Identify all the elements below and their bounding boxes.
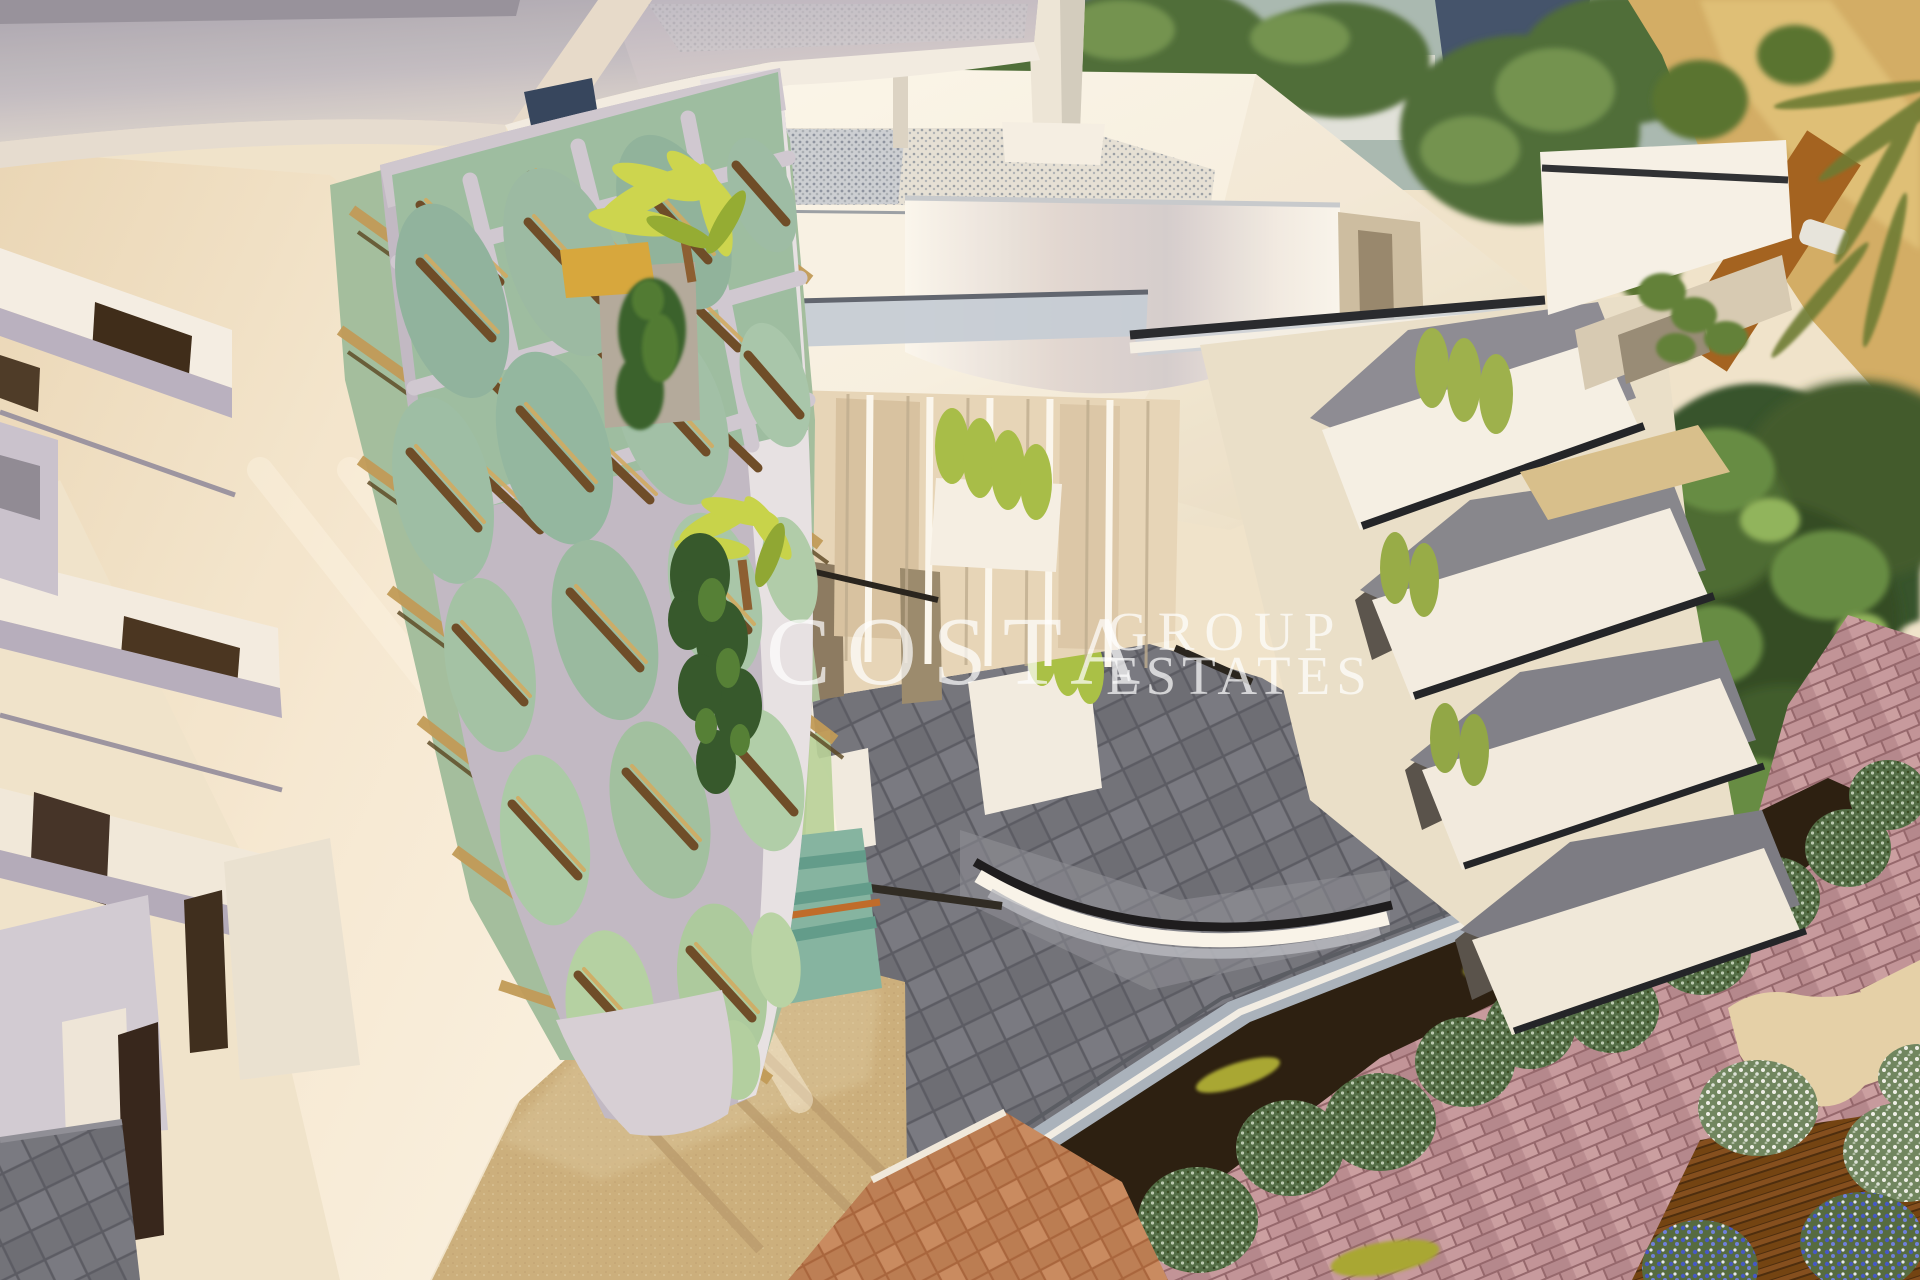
- svg-text:COSTA: COSTA: [766, 598, 1156, 705]
- svg-text:ESTATES: ESTATES: [1106, 645, 1373, 706]
